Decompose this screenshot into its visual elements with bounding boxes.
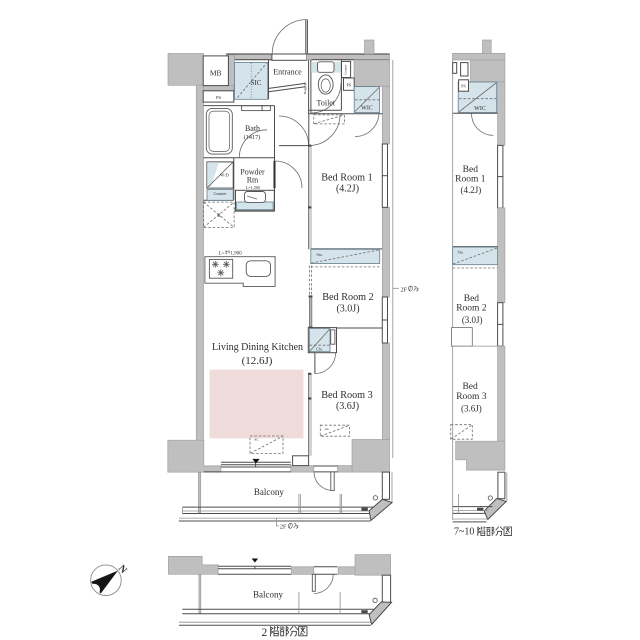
svg-text:Bed: Bed [462, 382, 478, 392]
svg-text:Baggage: Baggage [303, 82, 307, 94]
svg-text:Bed Room 1: Bed Room 1 [321, 172, 373, 183]
svg-text:Entrance: Entrance [273, 68, 302, 77]
svg-text:Room 3: Room 3 [456, 392, 487, 402]
svg-text:7~10: 7~10 [454, 526, 474, 537]
svg-text:SIC: SIC [251, 79, 262, 87]
svg-text:PS: PS [461, 84, 465, 89]
svg-text:(3.6J): (3.6J) [336, 401, 359, 412]
svg-text:Counter: Counter [344, 63, 348, 74]
svg-text:2F: 2F [401, 287, 408, 293]
svg-text:1,900: 1,900 [230, 251, 242, 256]
svg-text:PS: PS [346, 82, 351, 87]
svg-text:(3.0J): (3.0J) [462, 315, 483, 325]
svg-text:Clo.: Clo. [316, 347, 323, 352]
svg-text:AC: AC [254, 437, 259, 441]
svg-text:Toilet: Toilet [317, 99, 336, 108]
svg-text:(4.2J): (4.2J) [461, 185, 482, 195]
svg-text:(3.0J): (3.0J) [336, 304, 359, 315]
svg-text:(4.2J): (4.2J) [336, 183, 359, 194]
svg-text:WIC: WIC [361, 106, 373, 112]
svg-text:Rm: Rm [247, 175, 259, 184]
svg-text:2F: 2F [280, 525, 287, 531]
svg-text:Room 2: Room 2 [456, 304, 487, 314]
svg-text:W/D: W/D [220, 173, 230, 178]
svg-text:Counter: Counter [214, 191, 228, 196]
svg-text:(12.6J): (12.6J) [242, 355, 273, 367]
svg-text:Sto.: Sto. [458, 250, 464, 255]
svg-text:AC: AC [325, 427, 330, 431]
svg-text:L=: L= [219, 251, 225, 256]
svg-text:PS: PS [216, 95, 222, 100]
svg-text:Room 1: Room 1 [455, 174, 486, 184]
svg-text:MB: MB [210, 69, 222, 78]
svg-text:WIC: WIC [474, 106, 486, 112]
svg-text:Balcony: Balcony [254, 487, 284, 497]
svg-text:Sto.: Sto. [317, 252, 323, 257]
svg-text:2: 2 [262, 627, 268, 639]
svg-text:Balcony: Balcony [253, 590, 283, 600]
svg-text:Bed Room 2: Bed Room 2 [322, 292, 374, 303]
svg-text:Living Dining Kitchen: Living Dining Kitchen [212, 342, 303, 353]
svg-text:(3.6J): (3.6J) [461, 404, 482, 414]
svg-text:Bed: Bed [463, 165, 479, 175]
svg-text:Bed Room 3: Bed Room 3 [321, 390, 373, 401]
svg-text:Bed: Bed [464, 294, 480, 304]
